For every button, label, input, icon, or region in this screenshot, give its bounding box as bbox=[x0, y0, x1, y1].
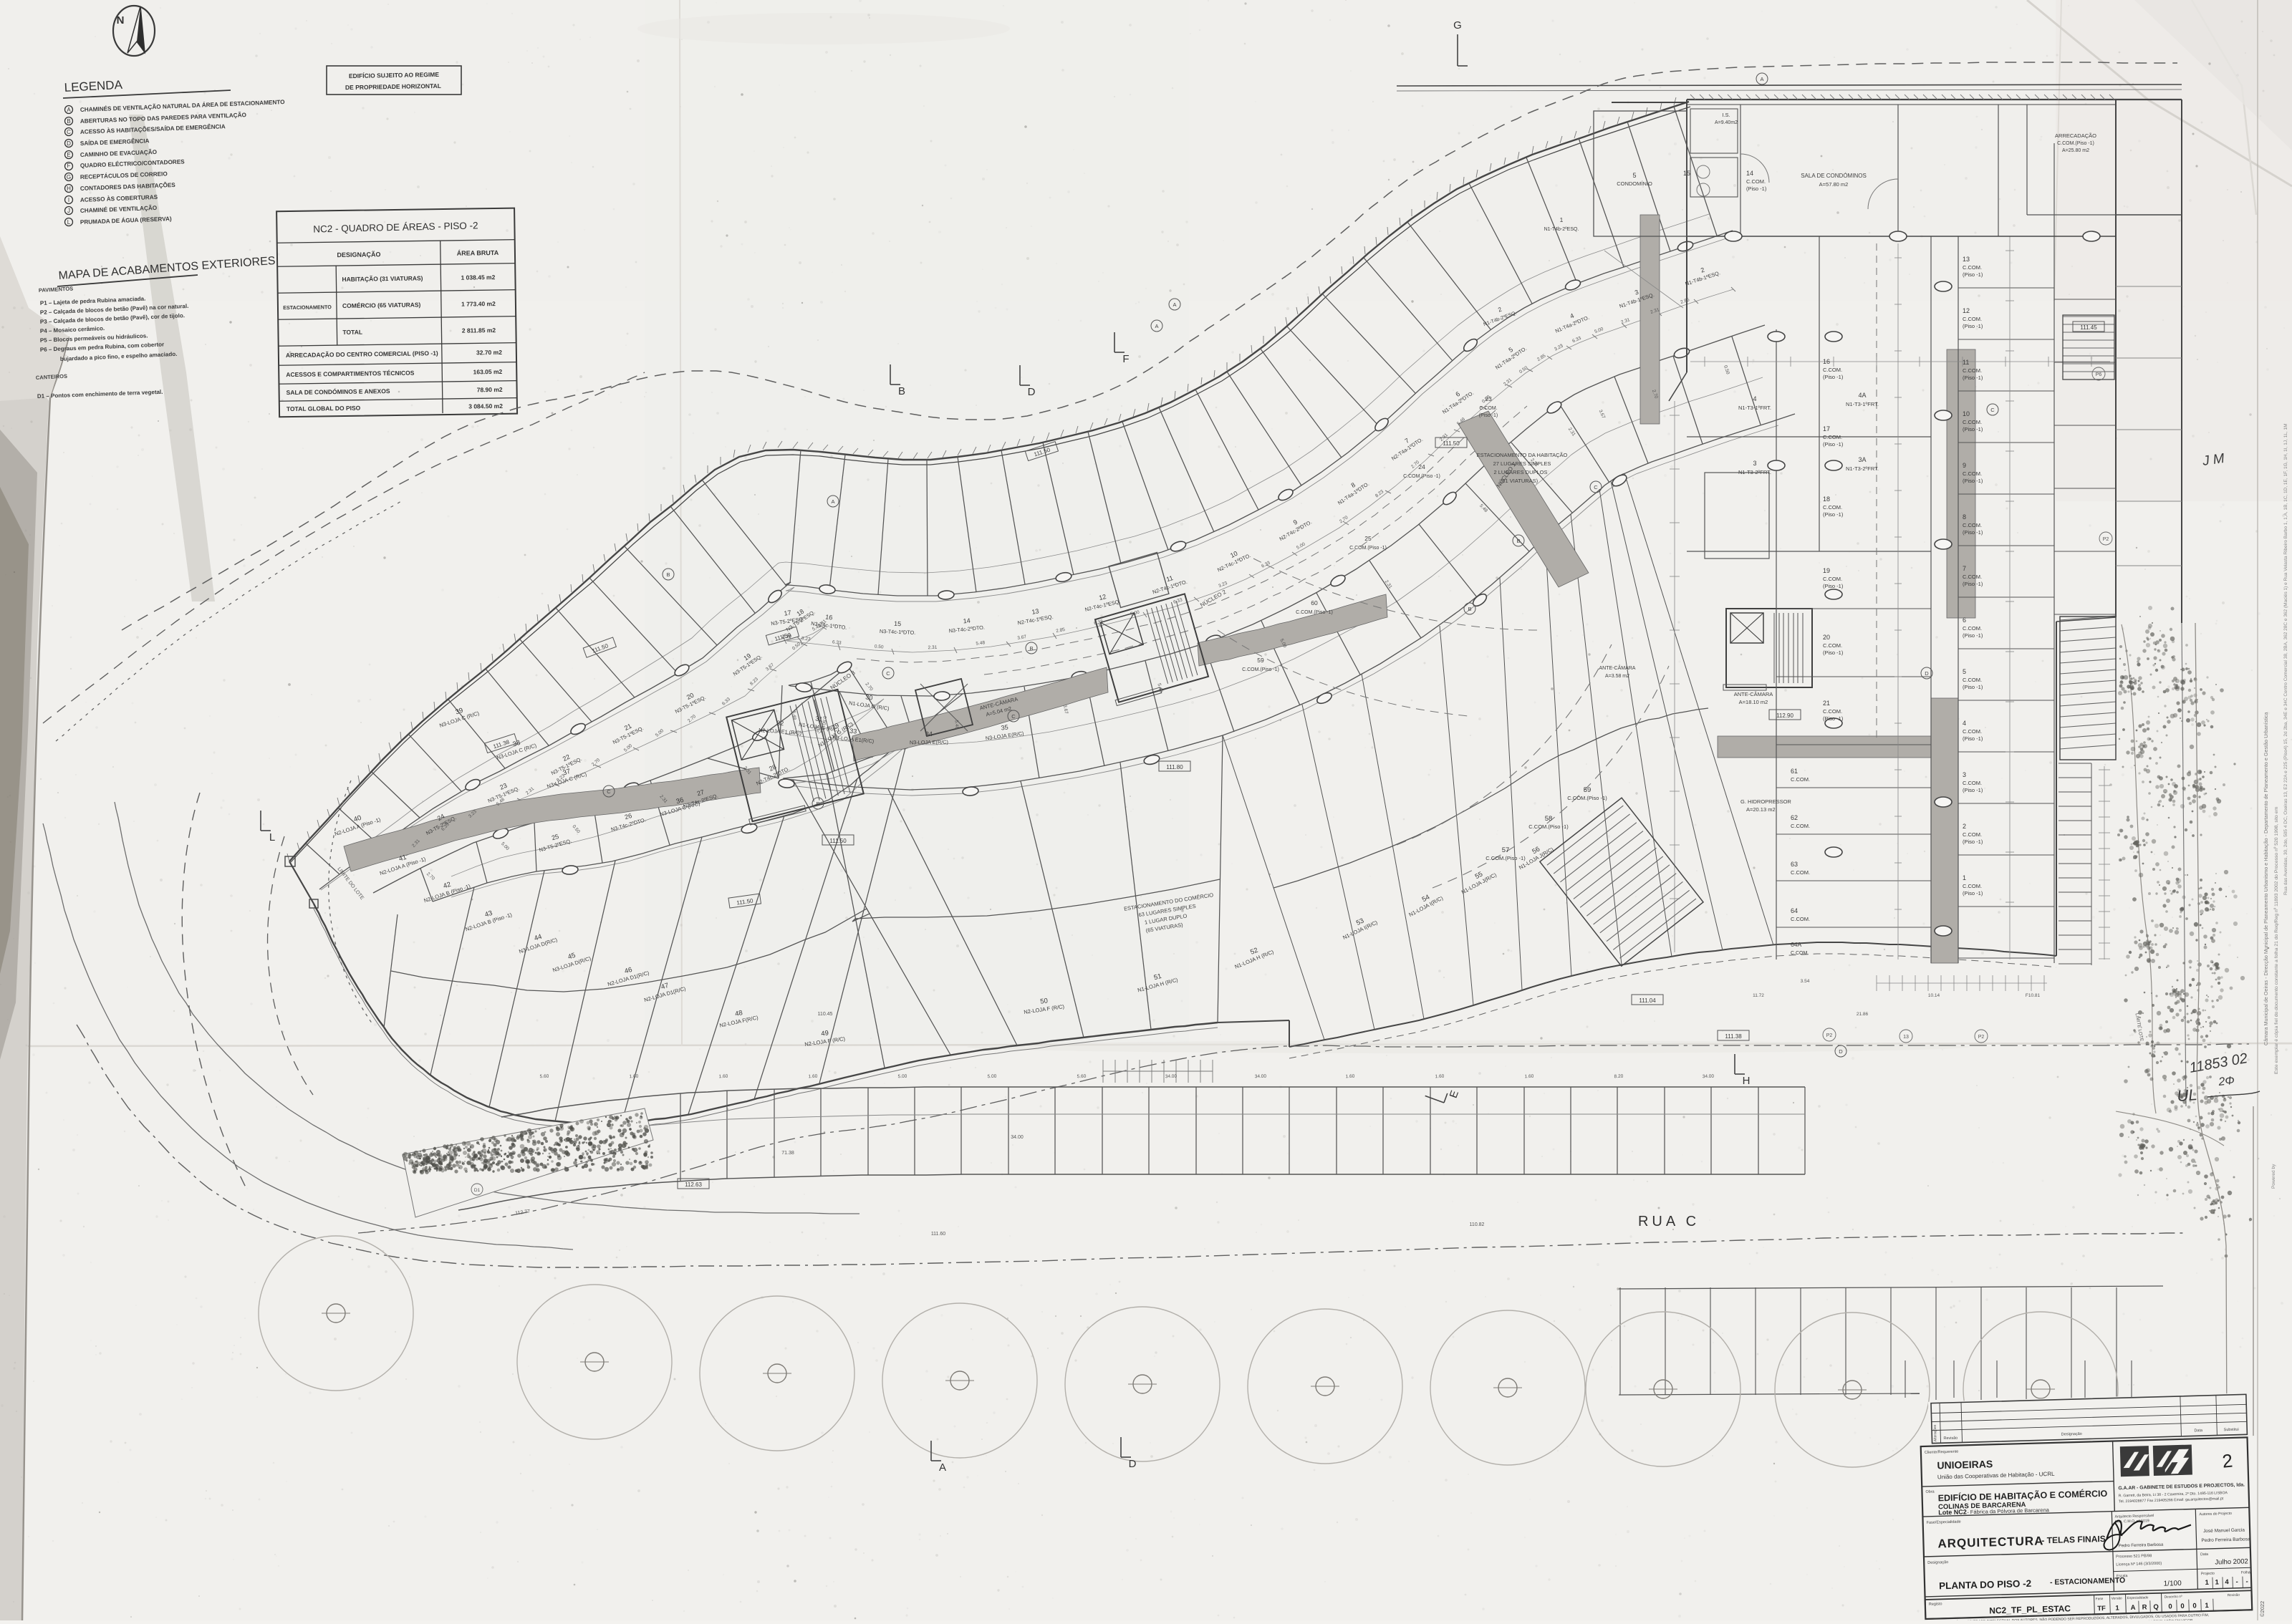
svg-text:E: E bbox=[816, 801, 819, 807]
svg-text:8.23: 8.23 bbox=[801, 636, 811, 642]
svg-text:N1-T3-1ºFRT.: N1-T3-1ºFRT. bbox=[1846, 401, 1879, 407]
svg-text:A=20.13 m2: A=20.13 m2 bbox=[1746, 806, 1776, 813]
svg-text:- TELAS FINAIS: - TELAS FINAIS bbox=[2041, 1534, 2106, 1545]
svg-text:25: 25 bbox=[1364, 535, 1372, 542]
svg-text:C.COM.: C.COM. bbox=[1963, 470, 1982, 477]
svg-text:ANTE-CÂMARA: ANTE-CÂMARA bbox=[1599, 664, 1636, 671]
svg-text:ESTACIONAMENTO: ESTACIONAMENTO bbox=[283, 304, 332, 311]
svg-text:COMÉRCIO (65 VIATURAS): COMÉRCIO (65 VIATURAS) bbox=[342, 301, 421, 309]
svg-text:C.COM.: C.COM. bbox=[1823, 576, 1842, 582]
svg-text:N1-T3-2ºFRT.: N1-T3-2ºFRT. bbox=[1846, 465, 1879, 472]
svg-text:(Piso -1): (Piso -1) bbox=[1963, 323, 1983, 329]
svg-text:C.COM.(Piso -1): C.COM.(Piso -1) bbox=[1528, 823, 1569, 830]
svg-text:ÁREA BRUTA: ÁREA BRUTA bbox=[457, 249, 499, 257]
svg-text:0: 0 bbox=[2192, 1602, 2197, 1610]
svg-text:Versão: Versão bbox=[2112, 1596, 2122, 1600]
svg-text:H: H bbox=[1743, 1075, 1751, 1087]
svg-text:D: D bbox=[1129, 1458, 1137, 1470]
svg-text:6: 6 bbox=[1963, 617, 1966, 624]
svg-text:C.COM.: C.COM. bbox=[1963, 419, 1982, 425]
svg-text:49: 49 bbox=[821, 1029, 829, 1038]
svg-text:34.00: 34.00 bbox=[1255, 1074, 1267, 1080]
svg-text:111.50: 111.50 bbox=[829, 838, 847, 844]
svg-text:1: 1 bbox=[1963, 874, 1966, 881]
svg-text:-: - bbox=[2245, 1577, 2248, 1585]
svg-text:A=18.10 m2: A=18.10 m2 bbox=[1739, 699, 1768, 705]
svg-text:(Piso -1): (Piso -1) bbox=[1963, 529, 1983, 536]
svg-text:Revisão: Revisão bbox=[1943, 1436, 1958, 1441]
svg-text:64A: 64A bbox=[1791, 941, 1801, 948]
svg-text:3.54: 3.54 bbox=[1801, 979, 1810, 984]
svg-text:L: L bbox=[67, 219, 71, 226]
svg-text:Designação: Designação bbox=[2061, 1432, 2082, 1437]
svg-text:24: 24 bbox=[1418, 463, 1425, 470]
svg-text:3A: 3A bbox=[1858, 456, 1866, 463]
svg-text:C: C bbox=[1594, 484, 1598, 490]
svg-text:1: 1 bbox=[1560, 216, 1564, 223]
svg-text:B: B bbox=[1029, 645, 1033, 652]
svg-text:D: D bbox=[1839, 1048, 1843, 1055]
svg-text:C.COM.: C.COM. bbox=[1823, 434, 1842, 440]
svg-text:G. HIDROPRESSOR: G. HIDROPRESSOR bbox=[1740, 798, 1791, 805]
svg-text:C.COM.: C.COM. bbox=[1746, 178, 1766, 185]
svg-text:1.60: 1.60 bbox=[1346, 1074, 1355, 1079]
svg-text:4: 4 bbox=[1753, 395, 1756, 402]
svg-text:Este exemplar é cópia fiel do: Este exemplar é cópia fiel do documento … bbox=[2274, 806, 2279, 1074]
svg-text:N1-T3-2ºFRT.: N1-T3-2ºFRT. bbox=[1738, 469, 1771, 475]
svg-text:C.COM.(Piso -1): C.COM.(Piso -1) bbox=[2057, 141, 2094, 146]
svg-text:(Piso -1): (Piso -1) bbox=[1963, 581, 1983, 587]
svg-text:3: 3 bbox=[1963, 771, 1966, 778]
svg-text:ESTACIONAMENTO DA HABITAÇÃO: ESTACIONAMENTO DA HABITAÇÃO bbox=[1477, 452, 1568, 458]
svg-text:12: 12 bbox=[1963, 307, 1970, 314]
svg-text:F: F bbox=[67, 163, 71, 169]
svg-text:30: 30 bbox=[865, 693, 873, 701]
svg-text:ARRECADAÇÃO: ARRECADAÇÃO bbox=[2055, 132, 2096, 139]
svg-text:14: 14 bbox=[1746, 170, 1753, 177]
svg-text:Folha: Folha bbox=[2241, 1570, 2250, 1575]
svg-text:8.20: 8.20 bbox=[1614, 1074, 1624, 1079]
svg-text:11: 11 bbox=[1963, 359, 1969, 366]
svg-text:1/100: 1/100 bbox=[2164, 1580, 2182, 1588]
svg-text:11.72: 11.72 bbox=[1753, 993, 1764, 998]
svg-text:71.38: 71.38 bbox=[781, 1151, 794, 1156]
svg-text:112.90: 112.90 bbox=[1776, 712, 1793, 719]
svg-text:A=25.80 m2: A=25.80 m2 bbox=[2062, 148, 2089, 153]
svg-text:L: L bbox=[269, 831, 275, 844]
svg-text:A: A bbox=[831, 498, 834, 505]
svg-text:27 LUGARES SIMPLES: 27 LUGARES SIMPLES bbox=[1493, 460, 1551, 467]
svg-text:D: D bbox=[67, 140, 71, 147]
svg-text:N1-T3-1ºFRT.: N1-T3-1ºFRT. bbox=[1738, 405, 1771, 411]
svg-text:0: 0 bbox=[2180, 1603, 2185, 1610]
svg-text:13: 13 bbox=[1903, 1035, 1909, 1040]
svg-text:I: I bbox=[68, 197, 69, 203]
svg-text:2 LUGARES DUPLOS: 2 LUGARES DUPLOS bbox=[1493, 469, 1547, 475]
svg-text:111.60: 111.60 bbox=[931, 1232, 945, 1237]
svg-text:Câmara Municipal de Oeiras - D: Câmara Municipal de Oeiras - Direcção Mu… bbox=[2263, 712, 2269, 1045]
svg-text:110.45: 110.45 bbox=[818, 1012, 833, 1017]
svg-text:7: 7 bbox=[1963, 565, 1966, 572]
svg-text:B: B bbox=[67, 118, 70, 125]
svg-text:(Piso -1): (Piso -1) bbox=[1963, 684, 1983, 690]
svg-text:111.04: 111.04 bbox=[1639, 997, 1656, 1004]
svg-text:H: H bbox=[67, 185, 71, 192]
svg-text:A=3.58 m2: A=3.58 m2 bbox=[1605, 674, 1629, 679]
svg-text:8: 8 bbox=[1963, 513, 1966, 521]
svg-text:13: 13 bbox=[1031, 607, 1040, 616]
svg-text:C: C bbox=[1990, 407, 1995, 413]
svg-text:Projecto: Projecto bbox=[2201, 1572, 2215, 1577]
svg-text:Revisão: Revisão bbox=[2228, 1593, 2240, 1598]
svg-text:C: C bbox=[1011, 713, 1016, 720]
svg-text:61: 61 bbox=[1791, 768, 1798, 775]
svg-text:Rua das Avenidas, 30, 2do, 505: Rua das Avenidas, 30, 2do, 505 4 DC, Ose… bbox=[2283, 423, 2288, 895]
svg-text:F: F bbox=[1122, 353, 1129, 365]
svg-text:2 811.85 m2: 2 811.85 m2 bbox=[462, 327, 496, 334]
svg-text:15: 15 bbox=[894, 620, 901, 627]
svg-text:57: 57 bbox=[1502, 846, 1510, 854]
svg-text:10.14: 10.14 bbox=[1928, 993, 1940, 998]
svg-text:2.31: 2.31 bbox=[928, 645, 937, 651]
svg-text:(Piso -1): (Piso -1) bbox=[1823, 649, 1844, 656]
svg-text:111.50: 111.50 bbox=[1443, 440, 1460, 447]
svg-text:C.COM.: C.COM. bbox=[1963, 574, 1982, 580]
svg-text:2: 2 bbox=[2221, 1450, 2233, 1472]
svg-text:3 084.50 m2: 3 084.50 m2 bbox=[468, 402, 503, 410]
svg-text:14: 14 bbox=[963, 617, 971, 625]
svg-text:21: 21 bbox=[1823, 700, 1830, 707]
svg-text:17: 17 bbox=[1823, 425, 1830, 432]
svg-text:N: N bbox=[117, 14, 125, 26]
svg-text:Lote NC2: Lote NC2 bbox=[1938, 1508, 1967, 1516]
svg-text:C.COM.: C.COM. bbox=[1963, 367, 1982, 374]
svg-text:34.00: 34.00 bbox=[1703, 1074, 1715, 1080]
svg-text:TOTAL: TOTAL bbox=[342, 329, 362, 336]
svg-text:5.48: 5.48 bbox=[953, 720, 959, 730]
svg-text:C.COM.: C.COM. bbox=[1823, 642, 1842, 649]
svg-text:N1-T4b-2ºESQ.: N1-T4b-2ºESQ. bbox=[1544, 227, 1579, 232]
svg-text:(Piso -1): (Piso -1) bbox=[1963, 478, 1983, 484]
svg-text:C.COM.: C.COM. bbox=[1963, 316, 1982, 322]
svg-text:112.63: 112.63 bbox=[685, 1181, 702, 1188]
svg-text:5: 5 bbox=[1632, 172, 1636, 179]
svg-text:D: D bbox=[1028, 386, 1036, 398]
svg-text:(Piso -1): (Piso -1) bbox=[1963, 838, 1983, 845]
svg-text:(Piso -1): (Piso -1) bbox=[1823, 374, 1844, 380]
svg-text:J: J bbox=[67, 208, 70, 214]
svg-text:C.COM.: C.COM. bbox=[1791, 869, 1810, 876]
svg-text:0.50: 0.50 bbox=[875, 644, 884, 650]
svg-text:21.86: 21.86 bbox=[1857, 1012, 1869, 1017]
svg-text:Designação: Designação bbox=[1927, 1560, 1948, 1565]
svg-text:D: D bbox=[1925, 670, 1929, 677]
svg-text:16: 16 bbox=[1823, 358, 1830, 365]
svg-text:111.45: 111.45 bbox=[2080, 324, 2097, 331]
svg-text:A: A bbox=[939, 1461, 946, 1474]
svg-text:78.90 m2: 78.90 m2 bbox=[477, 386, 503, 394]
svg-text:C.COM.: C.COM. bbox=[1479, 406, 1497, 411]
svg-text:R: R bbox=[2142, 1603, 2147, 1611]
svg-text:D1: D1 bbox=[474, 1188, 481, 1193]
svg-text:C.COM.: C.COM. bbox=[1963, 780, 1982, 786]
svg-text:15: 15 bbox=[1683, 170, 1690, 177]
svg-text:Autores do Projecto: Autores do Projecto bbox=[2199, 1512, 2232, 1517]
svg-text:(Piso -1): (Piso -1) bbox=[1963, 632, 1983, 639]
svg-text:A: A bbox=[1173, 301, 1176, 308]
svg-text:17: 17 bbox=[784, 609, 791, 617]
svg-text:B: B bbox=[1516, 538, 1520, 544]
svg-text:C.COM.(Piso -1): C.COM.(Piso -1) bbox=[1296, 610, 1333, 615]
svg-text:(Piso -1): (Piso -1) bbox=[1963, 426, 1983, 432]
svg-text:5.00: 5.00 bbox=[898, 1074, 907, 1079]
svg-text:5.60: 5.60 bbox=[540, 1074, 549, 1079]
svg-text:63: 63 bbox=[1791, 861, 1798, 868]
svg-text:1.60: 1.60 bbox=[1435, 1074, 1445, 1079]
svg-text:33: 33 bbox=[849, 728, 857, 735]
svg-text:C.COM.: C.COM. bbox=[1791, 823, 1810, 829]
svg-text:A=9.40m2: A=9.40m2 bbox=[1715, 120, 1738, 125]
svg-text:20: 20 bbox=[1823, 634, 1830, 641]
svg-text:59: 59 bbox=[1584, 786, 1592, 794]
svg-text:34.00: 34.00 bbox=[1165, 1074, 1178, 1080]
svg-text:I.S.: I.S. bbox=[1722, 112, 1730, 118]
svg-text:C.COM.: C.COM. bbox=[1963, 522, 1982, 528]
svg-text:3: 3 bbox=[1753, 460, 1756, 467]
svg-text:2.31: 2.31 bbox=[782, 634, 791, 639]
svg-text:C.COM.: C.COM. bbox=[1963, 264, 1982, 271]
svg-text:B: B bbox=[666, 571, 670, 578]
svg-text:34: 34 bbox=[925, 730, 933, 738]
svg-text:2Φ: 2Φ bbox=[2218, 1075, 2235, 1088]
svg-text:32: 32 bbox=[776, 720, 784, 728]
svg-text:(Piso -1): (Piso -1) bbox=[1823, 583, 1844, 589]
svg-text:2: 2 bbox=[1963, 823, 1966, 830]
svg-text:TF: TF bbox=[2097, 1605, 2106, 1613]
svg-text:C.COM.: C.COM. bbox=[1823, 708, 1842, 715]
svg-text:Q: Q bbox=[2153, 1603, 2159, 1611]
svg-text:(Piso -1): (Piso -1) bbox=[1963, 787, 1983, 793]
svg-text:1 773.40 m2: 1 773.40 m2 bbox=[461, 300, 496, 308]
svg-text:N3-LOJA E(R/C): N3-LOJA E(R/C) bbox=[910, 739, 948, 746]
svg-text:(Piso -1): (Piso -1) bbox=[1963, 890, 1983, 896]
svg-text:C.COM.: C.COM. bbox=[1963, 883, 1982, 889]
svg-text:0: 0 bbox=[2168, 1603, 2172, 1610]
svg-text:B: B bbox=[1468, 606, 1471, 612]
svg-text:111.80: 111.80 bbox=[1166, 764, 1183, 770]
svg-text:(Piso -1): (Piso -1) bbox=[1963, 374, 1983, 381]
svg-text:18: 18 bbox=[1823, 496, 1830, 503]
svg-text:G: G bbox=[67, 174, 71, 180]
svg-text:P2: P2 bbox=[1826, 1033, 1833, 1038]
svg-text:P2: P2 bbox=[1978, 1035, 1985, 1040]
svg-text:1 038.45 m2: 1 038.45 m2 bbox=[461, 274, 495, 281]
svg-text:1.60: 1.60 bbox=[719, 1074, 728, 1079]
svg-text:Alterações: Alterações bbox=[1933, 1424, 1938, 1441]
svg-text:G: G bbox=[1453, 19, 1462, 32]
svg-text:Powered by: Powered by bbox=[2271, 1164, 2276, 1189]
svg-text:C.COM.: C.COM. bbox=[1963, 831, 1982, 838]
svg-text:A: A bbox=[1155, 323, 1158, 329]
svg-text:62: 62 bbox=[1791, 814, 1798, 821]
svg-text:Julho 2002: Julho 2002 bbox=[2215, 1557, 2248, 1566]
svg-text:DESIGNAÇÃO: DESIGNAÇÃO bbox=[337, 251, 380, 258]
svg-text:110.82: 110.82 bbox=[1470, 1222, 1485, 1227]
svg-text:C.COM.(Piso -1): C.COM.(Piso -1) bbox=[1242, 667, 1279, 672]
svg-text:SALA DE CONDÓMINOS E ANEXOS: SALA DE CONDÓMINOS E ANEXOS bbox=[286, 387, 390, 396]
svg-text:A: A bbox=[67, 107, 71, 113]
svg-text:Substitui: Substitui bbox=[2224, 1428, 2239, 1433]
svg-text:HABITAÇÃO (31 VIATURAS): HABITAÇÃO (31 VIATURAS) bbox=[342, 274, 423, 283]
svg-text:UNIOEIRAS: UNIOEIRAS bbox=[1937, 1458, 1993, 1471]
svg-text:(Piso -1): (Piso -1) bbox=[1823, 511, 1844, 518]
svg-text:P6: P6 bbox=[2096, 372, 2102, 377]
svg-text:J M: J M bbox=[2201, 451, 2225, 469]
svg-text:A: A bbox=[2130, 1604, 2135, 1612]
svg-text:60: 60 bbox=[1311, 599, 1318, 606]
svg-text:111.38: 111.38 bbox=[1725, 1033, 1742, 1040]
svg-text:5.60: 5.60 bbox=[1077, 1074, 1087, 1079]
svg-text:35: 35 bbox=[1001, 723, 1008, 731]
svg-text:5.48: 5.48 bbox=[791, 710, 797, 720]
svg-text:Fase: Fase bbox=[2096, 1597, 2104, 1601]
svg-text:Registo: Registo bbox=[1929, 1602, 1942, 1607]
svg-text:A: A bbox=[1760, 76, 1763, 82]
svg-text:9: 9 bbox=[1963, 462, 1966, 469]
svg-text:(Piso -1): (Piso -1) bbox=[1479, 413, 1498, 418]
svg-text:4: 4 bbox=[1963, 720, 1966, 727]
svg-text:UL: UL bbox=[2177, 1086, 2198, 1105]
svg-text:16: 16 bbox=[825, 613, 833, 621]
svg-text:32.70 m2: 32.70 m2 bbox=[476, 349, 502, 357]
svg-text:(Piso -1): (Piso -1) bbox=[1746, 185, 1767, 192]
svg-text:Obra: Obra bbox=[1925, 1490, 1935, 1494]
svg-text:34.00: 34.00 bbox=[1011, 1135, 1024, 1140]
svg-text:C: C bbox=[67, 129, 71, 135]
svg-text:1.60: 1.60 bbox=[809, 1074, 818, 1079]
svg-text:E: E bbox=[67, 152, 70, 158]
svg-text:1.60: 1.60 bbox=[630, 1074, 639, 1079]
svg-text:Desenho nº: Desenho nº bbox=[2165, 1595, 2182, 1600]
svg-text:C.COM.: C.COM. bbox=[1963, 625, 1982, 632]
svg-text:C.COM.: C.COM. bbox=[1791, 916, 1810, 922]
svg-text:13: 13 bbox=[1963, 256, 1970, 263]
svg-text:C.COM.(Piso -1): C.COM.(Piso -1) bbox=[1349, 546, 1387, 551]
svg-text:B: B bbox=[898, 385, 905, 397]
svg-text:C.COM.: C.COM. bbox=[1963, 728, 1982, 735]
svg-text:C: C bbox=[886, 670, 890, 677]
svg-text:-: - bbox=[2235, 1578, 2238, 1586]
svg-text:CONDOMÍNIO: CONDOMÍNIO bbox=[1617, 180, 1652, 187]
svg-text:SALA DE CONDÓMINOS: SALA DE CONDÓMINOS bbox=[1801, 173, 1867, 179]
svg-text:C.COM.: C.COM. bbox=[1791, 951, 1809, 956]
svg-text:(Piso -1): (Piso -1) bbox=[1963, 735, 1983, 742]
svg-text:64: 64 bbox=[1791, 907, 1798, 914]
svg-text:TOTAL GLOBAL DO PISO: TOTAL GLOBAL DO PISO bbox=[286, 405, 361, 412]
svg-text:5: 5 bbox=[1963, 668, 1966, 675]
svg-text:C: C bbox=[607, 788, 611, 795]
svg-text:ANTE-CÂMARA: ANTE-CÂMARA bbox=[1734, 691, 1773, 697]
svg-text:5.00: 5.00 bbox=[988, 1074, 997, 1079]
svg-text:58: 58 bbox=[1545, 815, 1553, 823]
svg-text:C.COM.(Piso -1): C.COM.(Piso -1) bbox=[1403, 474, 1440, 479]
svg-text:C.COM.: C.COM. bbox=[1791, 776, 1810, 783]
svg-text:Especialidade: Especialidade bbox=[2127, 1595, 2149, 1600]
svg-text:19: 19 bbox=[1823, 567, 1830, 574]
svg-text:163.05 m2: 163.05 m2 bbox=[473, 368, 503, 376]
svg-text:C.COM.(Piso -1): C.COM.(Piso -1) bbox=[1567, 795, 1607, 801]
svg-text:C.COM.: C.COM. bbox=[1823, 504, 1842, 511]
svg-text:Data: Data bbox=[2194, 1429, 2203, 1433]
svg-text:10: 10 bbox=[1963, 410, 1970, 417]
svg-text:(Piso -1): (Piso -1) bbox=[1823, 715, 1844, 722]
svg-text:P2: P2 bbox=[2103, 537, 2109, 542]
svg-text:(Piso -1): (Piso -1) bbox=[1963, 271, 1983, 278]
svg-text:RUA C: RUA C bbox=[1638, 1214, 1700, 1229]
svg-text:4A: 4A bbox=[1858, 392, 1866, 399]
svg-text:59: 59 bbox=[1257, 657, 1264, 664]
svg-text:©2022: ©2022 bbox=[2259, 1601, 2265, 1617]
svg-text:Escala: Escala bbox=[2117, 1574, 2128, 1578]
svg-text:A=57.80 m2: A=57.80 m2 bbox=[1819, 181, 1849, 188]
svg-text:C.COM.: C.COM. bbox=[1963, 677, 1982, 683]
svg-text:50: 50 bbox=[1040, 997, 1049, 1005]
svg-text:(Piso -1): (Piso -1) bbox=[1823, 441, 1844, 448]
svg-text:C.COM.(Piso -1): C.COM.(Piso -1) bbox=[1486, 855, 1526, 861]
svg-text:Data: Data bbox=[2200, 1552, 2208, 1557]
svg-text:F10.81: F10.81 bbox=[2026, 993, 2041, 998]
svg-text:C.COM.: C.COM. bbox=[1823, 367, 1842, 373]
svg-text:1.60: 1.60 bbox=[1525, 1074, 1534, 1079]
